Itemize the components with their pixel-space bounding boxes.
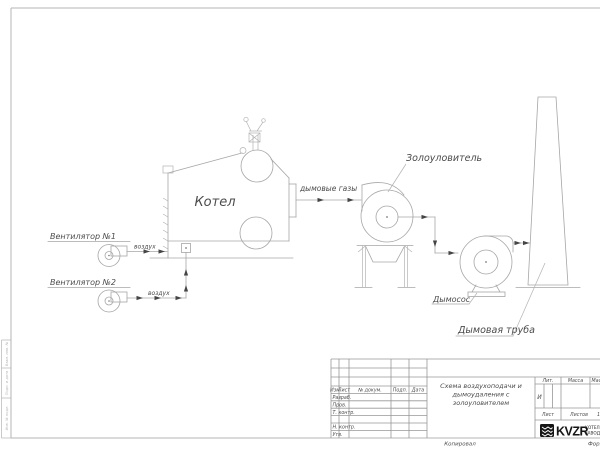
schematic-sheet: Взам. инв. № Подп. и дата Инв. № подл. В…	[0, 0, 600, 450]
sheet-label: Лист	[541, 412, 554, 418]
col-data: Дата	[411, 388, 424, 394]
doc-title-line3: золоуловителем	[453, 399, 510, 407]
margin-cell-top-label: Взам. инв. №	[5, 342, 9, 367]
col-ndoc: № докум.	[357, 388, 382, 394]
air-label-1: воздух	[134, 244, 156, 251]
col-podp: Подп.	[393, 388, 408, 394]
format-label: Формат А4	[588, 442, 600, 448]
smoke-exhauster-label: Дымосос	[432, 295, 471, 304]
row-nkontr: Н. контр.	[333, 425, 356, 431]
copied-label: Копировал	[444, 442, 476, 448]
boiler-drawing	[150, 117, 296, 258]
margin-cell-mid-label: Подп. и дата	[5, 371, 9, 395]
col-list: Лист	[337, 388, 350, 394]
org-line1: КОТЕЛЬНЫЙ	[585, 425, 600, 430]
scale-label: Масштаб	[592, 378, 600, 384]
kvzr-logo-icon	[540, 424, 554, 437]
row-utv: Утв.	[333, 432, 343, 438]
sheets-label: Листов	[569, 412, 588, 418]
row-tkontr: Т. контр.	[333, 410, 355, 416]
flue-gas-duct	[296, 198, 361, 202]
sheet-frame	[11, 8, 600, 438]
margin-cell-bottom-label: Инв. № подл.	[5, 406, 9, 431]
safety-valve-icon	[240, 117, 265, 153]
flue-gases-label: дымовые газы	[299, 184, 357, 193]
row-prov: Пров.	[333, 402, 347, 408]
row-razrab: Разраб.	[333, 395, 352, 401]
doc-title-line2: дымоудаления с	[451, 391, 509, 399]
doc-title-line1: Схема воздухоподачи и	[440, 382, 522, 390]
cyclone-to-exhauster-duct	[398, 215, 458, 255]
ash-collector-drawing	[355, 183, 415, 288]
fan-1-label: Вентилятор №1	[50, 232, 116, 241]
chimney-drawing	[516, 97, 580, 288]
lit-value: И	[537, 394, 542, 401]
exhauster-to-chimney-duct	[513, 241, 530, 245]
kvzr-logo-text: KVZR	[556, 425, 589, 439]
smoke-exhauster-drawing	[460, 236, 513, 297]
air-label-2: воздух	[148, 290, 170, 297]
lit-label: Лит.	[541, 378, 553, 384]
org-line2: ЗАВОД	[585, 431, 600, 436]
margin-stamp: Взам. инв. № Подп. и дата Инв. № подл.	[2, 340, 12, 438]
fan-1-symbol	[98, 245, 127, 267]
mass-label: Масса	[568, 378, 583, 384]
ash-collector-label: Золоуловитель	[406, 153, 482, 164]
fan-2-label: Вентилятор №2	[50, 278, 116, 287]
fan-2-symbol	[98, 290, 127, 312]
chimney-label: Дымовая труба	[457, 325, 535, 336]
boiler-label: Котел	[194, 195, 235, 210]
title-block: Изм Лист № докум. Подп. Дата Разраб. Про…	[330, 359, 600, 439]
